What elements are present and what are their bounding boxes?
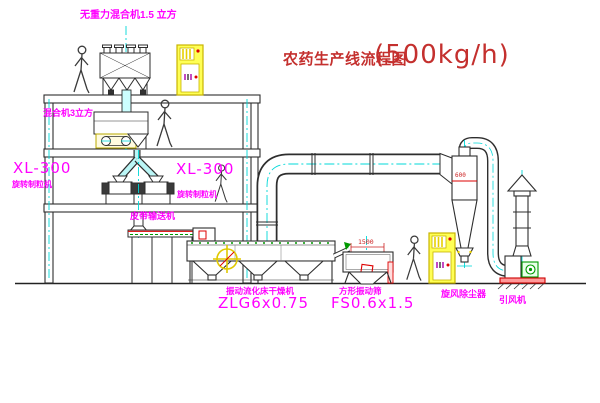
label-granulator-right-model: XL-300 (176, 162, 234, 177)
person-figure (407, 236, 421, 280)
label-cyclone: 旋风除尘器 (441, 290, 486, 299)
label-top-mixer: 无重力混合机1.5 立方 (80, 11, 177, 21)
granulator-left (102, 176, 138, 204)
exhaust-stack (508, 175, 536, 256)
dryer-body (187, 241, 335, 261)
label-granulator-left-model: XL-300 (13, 161, 71, 176)
mid-mixer (94, 112, 148, 149)
process-flow-diagram: 农药生产线流程图 (500kg/h) 无重力混合机1.5 立方 混合机3立方 X… (0, 0, 600, 403)
diagram-title-capacity: (500kg/h) (374, 42, 510, 68)
control-cabinet-roof (177, 45, 203, 95)
granulator-right (138, 176, 174, 204)
dim-cyclone-600: 600 (455, 173, 466, 179)
mixer-drop-duct (122, 90, 131, 113)
control-cabinet-ground (429, 233, 455, 283)
dryer-exhaust-duct (256, 153, 452, 241)
cyclone (452, 147, 477, 266)
label-belt-conveyor: 皮带输送机 (130, 212, 175, 221)
label-dryer-model: ZLG6x0.75 (218, 296, 309, 311)
label-granulator-left: 旋转制粒机 (12, 181, 52, 189)
label-mid-mixer: 混合机3立方 (43, 109, 93, 118)
dim-sieve-1500: 1500 (358, 239, 374, 246)
cyclone-cone (452, 200, 477, 248)
fan-base (500, 278, 545, 283)
label-sieve-model: FS0.6x1.5 (331, 296, 414, 311)
person-figure (74, 46, 89, 93)
label-granulator-right: 旋转制粒机 (177, 191, 217, 199)
fan-housing (505, 256, 521, 280)
square-sieve (343, 242, 393, 284)
sieve-discharge (388, 262, 393, 283)
label-fan: 引风机 (499, 296, 526, 305)
stack-rain-cap (508, 175, 536, 191)
top-mixer (100, 45, 150, 95)
person-figure (157, 100, 172, 147)
